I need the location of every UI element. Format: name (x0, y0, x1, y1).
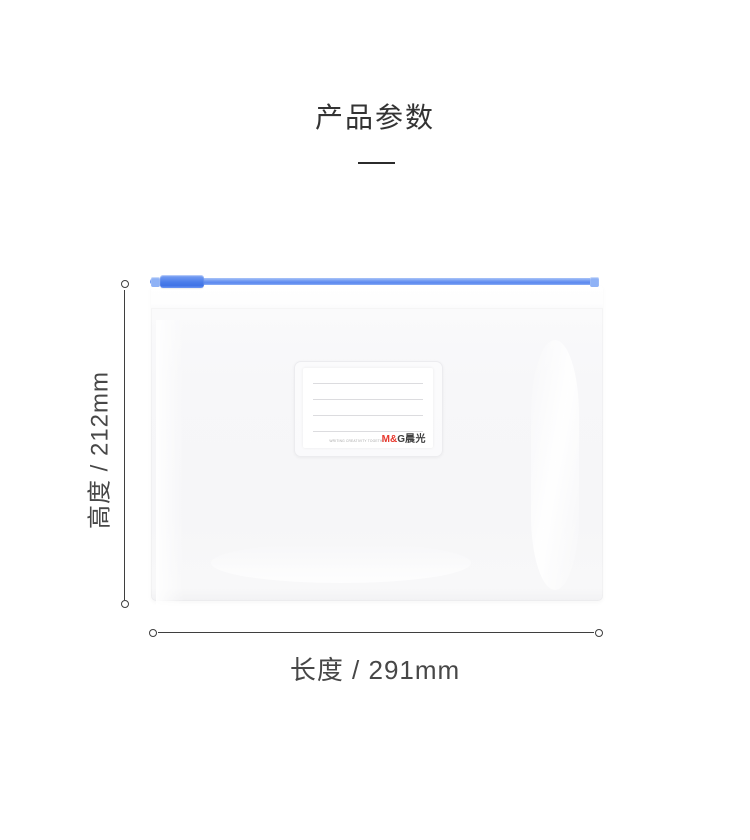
zipper-left-stop (151, 277, 160, 287)
height-dimension-label: 高度 / 212mm (80, 371, 115, 529)
bag-crease-highlight (531, 340, 579, 590)
length-dimension-line (158, 632, 594, 633)
brand-latin-dark: G (397, 434, 405, 445)
bag-crease-highlight (156, 320, 184, 610)
label-card: WRITING CREATIVITY TOGETHER M&G晨光 (303, 368, 433, 448)
height-dimension-line (124, 290, 125, 600)
bag-crease-highlight (211, 543, 471, 583)
card-ruled-line (313, 431, 423, 432)
card-ruled-line (313, 415, 423, 416)
bag-top-seam (151, 285, 603, 309)
brand-latin-red: M& (382, 434, 398, 445)
zipper-slider (160, 275, 204, 288)
dimension-endpoint-circle-icon (149, 629, 157, 637)
mg-brand-logo: M&G晨光 (382, 434, 426, 445)
dimension-endpoint-circle-icon (595, 629, 603, 637)
page-title: 产品参数 (0, 96, 750, 136)
product-parameters-page: 产品参数 WRITING CREATIVITY TOGETHER M&G晨光 高… (0, 0, 750, 840)
zipper-right-stop (590, 277, 599, 287)
title-divider (358, 162, 395, 164)
brand-chinese-name: 晨光 (405, 434, 426, 445)
card-ruled-line (313, 383, 423, 384)
brand-slogan-text: WRITING CREATIVITY TOGETHER (329, 440, 387, 443)
dimension-endpoint-circle-icon (121, 600, 129, 608)
card-ruled-line (313, 399, 423, 400)
label-pocket: WRITING CREATIVITY TOGETHER M&G晨光 (294, 361, 443, 457)
dimension-endpoint-circle-icon (121, 280, 129, 288)
zipper-rail (150, 278, 599, 285)
length-dimension-label: 长度 / 291mm (0, 650, 750, 687)
